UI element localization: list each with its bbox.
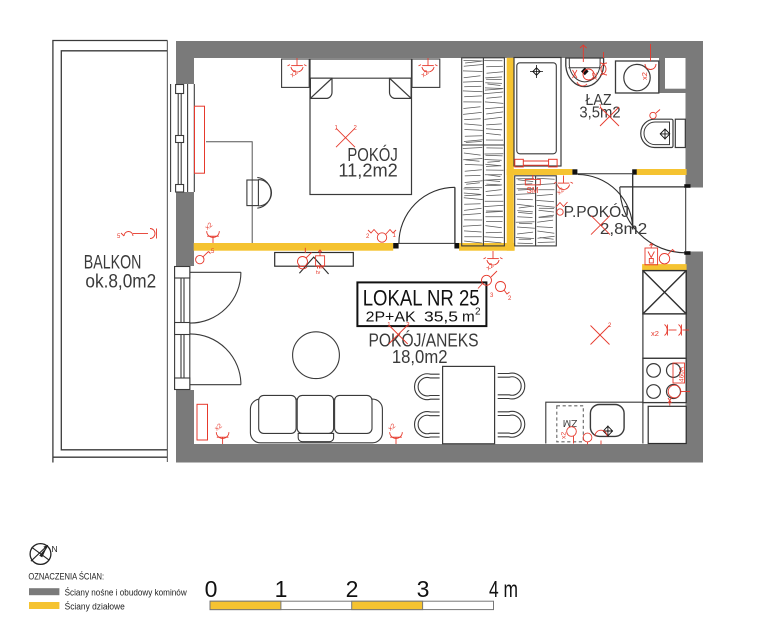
svg-text:P.POKÓJ: P.POKÓJ — [564, 202, 630, 221]
svg-text:2: 2 — [475, 307, 481, 318]
svg-text:SM: SM — [527, 186, 539, 195]
svg-text:N: N — [52, 544, 58, 554]
svg-text:ZM: ZM — [563, 417, 577, 428]
svg-text:x2: x2 — [640, 72, 649, 80]
svg-text:Ściany działowe: Ściany działowe — [65, 600, 125, 611]
svg-text:460A: 460A — [679, 366, 686, 382]
svg-text:Ściany nośne i obudowy kominów: Ściany nośne i obudowy kominów — [65, 586, 188, 597]
svg-text:BALKON: BALKON — [84, 253, 142, 274]
svg-text:x2: x2 — [590, 72, 599, 80]
svg-text:3: 3 — [417, 576, 430, 602]
svg-text:0: 0 — [205, 576, 218, 602]
svg-text:x2: x2 — [651, 329, 659, 338]
svg-text:2: 2 — [346, 576, 359, 602]
svg-text:LOKAL NR 25: LOKAL NR 25 — [363, 285, 480, 310]
svg-text:OZNACZENIA ŚCIAN:: OZNACZENIA ŚCIAN: — [28, 570, 104, 582]
svg-text:2,8m2: 2,8m2 — [600, 221, 647, 238]
svg-text:tv: tv — [316, 270, 321, 276]
svg-text:1: 1 — [275, 576, 288, 602]
svg-text:m: m — [462, 308, 475, 325]
svg-text:18,0m2: 18,0m2 — [392, 347, 448, 367]
svg-text:4 m: 4 m — [489, 576, 518, 602]
svg-text:11,2m2: 11,2m2 — [338, 160, 397, 180]
svg-text:ok.8,0m2: ok.8,0m2 — [85, 272, 156, 293]
svg-text:35,5: 35,5 — [424, 308, 458, 325]
